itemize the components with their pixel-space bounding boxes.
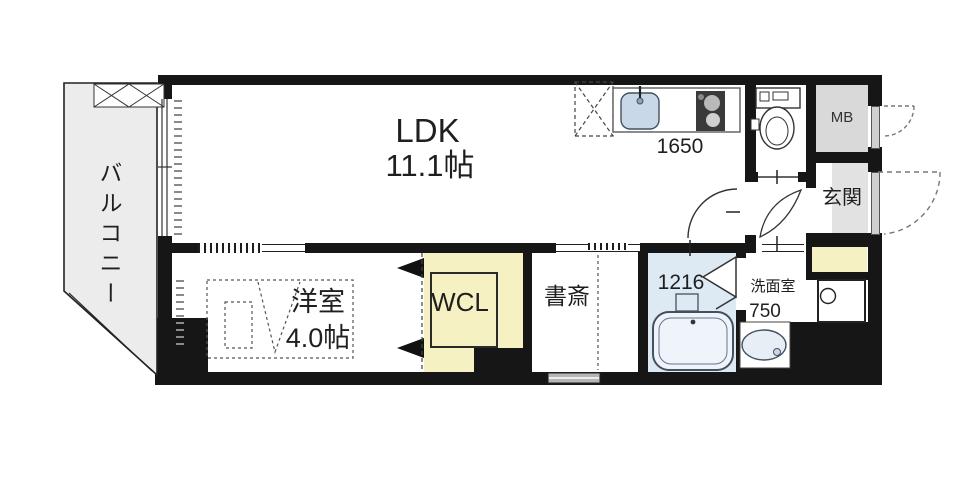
study-window [548,373,600,383]
washbasin [740,322,790,368]
western-room-size-label: 4.0帖 [262,324,374,352]
entrance-door-arc [878,172,940,234]
meter-box-label: MB [816,110,868,126]
hall-door-leaf [760,190,801,237]
mb-door-arc [884,106,914,136]
wall-ticks [690,170,777,256]
bath-size-label: 1216 [648,272,714,294]
bath-counter [676,294,698,311]
floorplan-canvas: バルコニー LDK 11.1帖 1650 MB 玄関 洋室 4.0帖 WCL 書… [0,0,966,502]
ldk-door-arc [688,189,737,238]
washroom-label: 洗面室 [744,279,802,295]
kitchen-stove [696,91,725,131]
balcony-hatch-box [94,84,164,107]
wcl-label: WCL [416,289,504,316]
toilet-fixture [751,88,800,149]
balcony-window-frames [158,99,172,236]
kitchen-width-label: 1650 [640,136,720,158]
entrance-label: 玄関 [814,188,870,209]
study-label: 書斎 [532,284,602,308]
ldk-size-label: 11.1帖 [330,150,530,183]
refrigerator-space [575,82,613,136]
balcony-label: バルコニー [89,113,121,358]
washing-machine-pan [818,280,865,322]
western-room-label: 洋室 [270,288,366,316]
washroom-width-label: 750 [740,302,790,322]
floorplan-graphics [0,0,966,502]
ldk-label: LDK [340,114,515,149]
